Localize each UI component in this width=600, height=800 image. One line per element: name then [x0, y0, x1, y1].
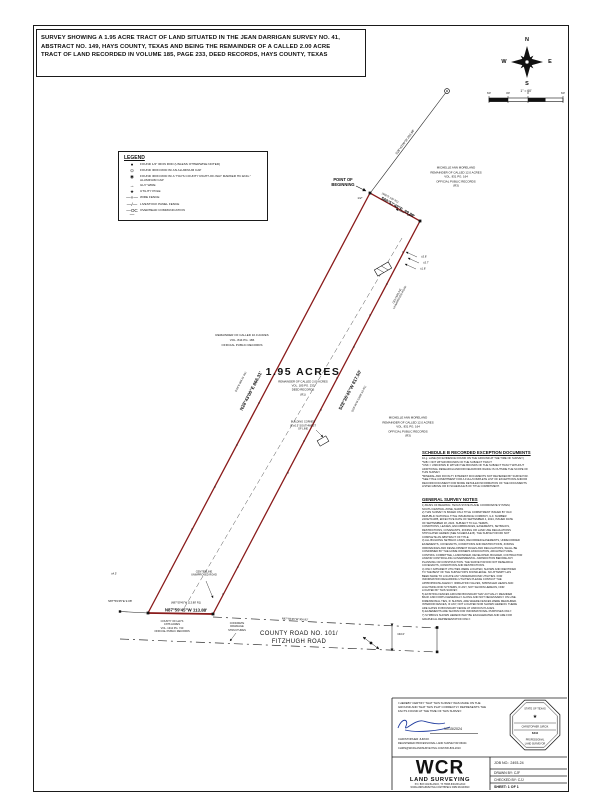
legend-item: ★ UTILITY POLE: [124, 190, 264, 195]
scale-tick-60-left: 60': [487, 91, 491, 95]
surveyor-contact: CHRIS@WCRLANDSURVEYING.COM 830-833-2010: [398, 747, 461, 750]
certification-statement: I HEREBY CERTIFY THAT THIS SURVEY WAS MA…: [398, 702, 503, 713]
bearing-south-line: N87°59'45"W 113.88': [165, 607, 207, 612]
utility-pole-legend-icon: ★: [124, 190, 140, 195]
compass-e-label: E: [548, 59, 552, 65]
certification-date: 10/15/2024: [444, 727, 462, 731]
compass-w-label: W: [501, 59, 506, 65]
building-corner-note: BUILDING CORNER IS ±0.5' SOUTHWEST OF LI…: [290, 421, 316, 432]
drawn-by: DRAWN BY: CJF: [494, 771, 520, 775]
legend-item-label: OVERHEAD COMMUNICATION: [140, 209, 264, 218]
seal-state-label: STATE OF TEXAS: [524, 708, 545, 711]
schedule-b-title: SCHEDULE B RECORDED EXCEPTION DOCUMENTS: [422, 450, 531, 455]
seal-number: 6344: [532, 731, 538, 735]
parcel-county-hays: COUNTY OF HAYS 0.876 ACRES VOL. 1312 PG.…: [154, 620, 189, 634]
checked-by: CHECKED BY: CJJ: [494, 778, 524, 782]
scale-tick-30: 30': [506, 91, 510, 95]
general-survey-notes: 1) BASIS OF BEARING: TEXAS STATE PLANE C…: [422, 504, 568, 621]
legend-item-label: FOUND 1/2" IRON ROD (UNLESS OTHERWISE NO…: [140, 163, 264, 168]
firm-name: LAND SURVEYING: [410, 777, 470, 783]
scale-tick-0: 0: [527, 91, 529, 95]
guy-wire-icon: →: [124, 184, 140, 189]
centerline-label-lower: CENTERLINE UNIMPROVED ROAD: [191, 571, 217, 578]
dim-shed-3: ±1.8': [420, 268, 426, 271]
seal-surveyor-name: CHRISTOPHER JURCIK: [522, 725, 549, 728]
compass-s-label: S: [525, 81, 529, 87]
dim-shed-1: ±3.8': [421, 256, 427, 259]
surveyor-name: CHRISTOPHER JURCIK: [398, 737, 429, 741]
legend-item: ◉ FOUND IRON ROD W/ A "HAYS COUNTY RIGHT…: [124, 175, 264, 183]
seal-professional-label: PROFESSIONAL: [526, 738, 545, 741]
legend: LEGEND ● FOUND 1/2" IRON ROD (UNLESS OTH…: [118, 151, 268, 221]
legend-title: LEGEND: [124, 155, 145, 161]
survey-plat-page: ××× ××× ××× × ××× ××: [0, 0, 600, 800]
parcel-moreland-top: MICHELLE ANN MORELAND REMAINDER OF CALLE…: [430, 166, 481, 189]
legend-item-label: FOUND IRON ROD W/ AN ALUMINUM CAP: [140, 169, 264, 174]
surveyor-registration: REGISTERED PROFESSIONAL LAND SURVEYOR #6…: [398, 742, 466, 745]
found-rod-aluminum-cap-icon: ⊙: [124, 169, 140, 174]
road-name-label: COUNTY ROAD NO. 101/ FITZHUGH ROAD: [260, 630, 338, 646]
legend-item-label: WIRE FENCE: [140, 196, 264, 201]
legend-item-label: GUY WIRE: [140, 184, 264, 189]
legend-item-label: FOUND IRON ROD W/ A "HAYS COUNTY RIGHT-O…: [140, 175, 264, 183]
bearing-west-tie: S87°59'45"E 9.08': [108, 599, 132, 603]
bearing-south-record: (N87°59'45"W 113.88' R1): [171, 602, 201, 605]
legend-item-label: UTILITY POLE: [140, 190, 264, 195]
legend-item: ⊙ FOUND IRON ROD W/ AN ALUMINUM CAP: [124, 169, 264, 174]
seal-land-surveyor-label: LAND SURVEYOR: [525, 743, 545, 746]
tract-area-label: 1.95 ACRES: [266, 366, 341, 378]
point-of-beginning-label: POINT OF BEGINNING: [331, 177, 354, 187]
schedule-b-notes: 10.g. LANE (NO EVIDENCE FOUND ON THE GRO…: [422, 457, 568, 489]
pob-rod-size: 1/2": [357, 196, 362, 200]
legend-item-label: LIVESTOCK PANEL FENCE: [140, 203, 264, 208]
general-notes-title: GENERAL SURVEY NOTES: [422, 497, 478, 502]
found-iron-rod-icon: ●: [124, 163, 140, 168]
dim-shed-2: ±3.7': [423, 262, 429, 265]
concrete-drainage-note: CONCRETE DRAINAGE STRUCTURES: [228, 622, 246, 632]
overhead-comm-icon: —OC—: [124, 209, 140, 218]
legend-item: —OC— OVERHEAD COMMUNICATION: [124, 209, 264, 218]
legend-item: → GUY WIRE: [124, 184, 264, 189]
firm-logo: WCR: [416, 759, 464, 778]
livestock-fence-icon: —/—: [124, 203, 140, 208]
legend-item: —/— LIVESTOCK PANEL FENCE: [124, 203, 264, 208]
dim-fence: ±4.5': [111, 573, 117, 576]
wire-fence-icon: —×—: [124, 196, 140, 201]
found-rod-row-marker-icon: ◉: [124, 175, 140, 183]
parcel-moreland-mid: MICHELLE ANN MORELAND REMAINDER OF CALLE…: [382, 416, 433, 439]
job-number: JOB NO.: 2493-24: [494, 761, 524, 765]
page-border: [33, 25, 569, 792]
legend-item: ● FOUND 1/2" IRON ROD (UNLESS OTHERWISE …: [124, 163, 264, 168]
sheet-number: SHEET: 1 OF 1: [494, 785, 519, 789]
firm-address: P.O. BOX 461 BLANCO, TX 78606 830-833-20…: [415, 784, 465, 786]
seal-star-icon: ★: [533, 714, 537, 720]
compass-n-label: N: [525, 37, 529, 43]
tract-area-sub: REMAINDER OF CALLED 2.00 ACRES VOL. 185 …: [278, 380, 328, 397]
dim-road-width: ±40.0': [397, 632, 405, 636]
survey-title: SURVEY SHOWING A 1.95 ACRE TRACT OF LAND…: [41, 34, 359, 60]
scale-tick-60-right: 60': [561, 91, 565, 95]
legend-item: —×— WIRE FENCE: [124, 196, 264, 201]
dim-clearance: ±2.2': [407, 213, 413, 217]
title-box: SURVEY SHOWING A 1.95 ACRE TRACT OF LAND…: [36, 29, 366, 77]
scale-text: 1" = 60': [520, 89, 531, 93]
parcel-ten-acres: REMAINDER OF CALLED 10.0 ACRES VOL. 844 …: [215, 333, 268, 347]
firm-website: WCRLANDSURVEYING.COM TBPELS FIRM #101945…: [411, 787, 470, 789]
